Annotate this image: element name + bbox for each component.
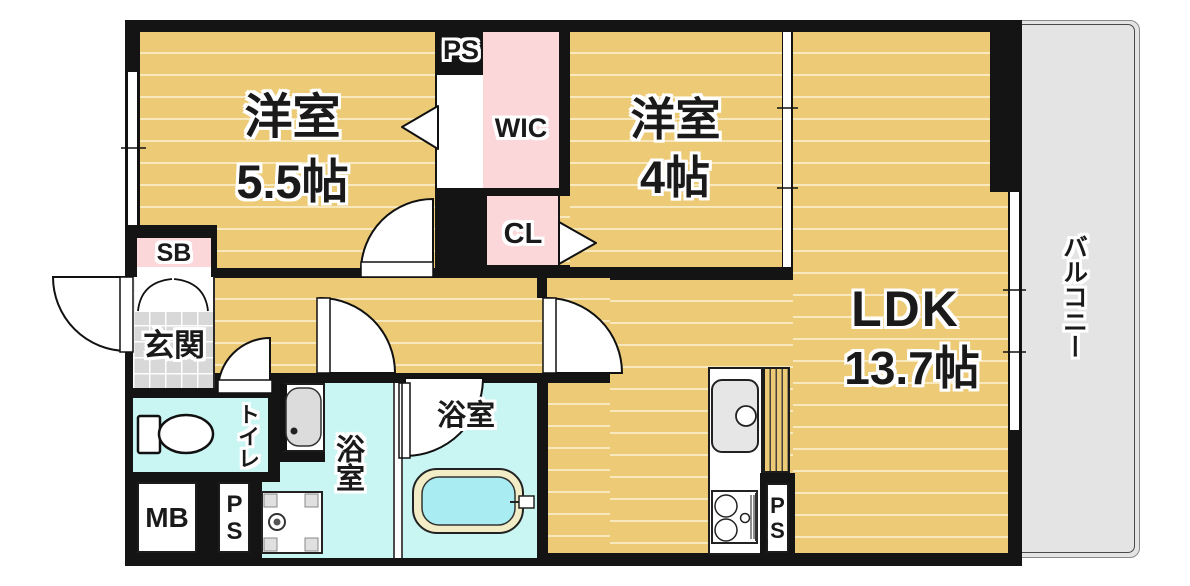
wic-label: WIC [485,110,557,146]
partition-wash-bath [393,383,403,558]
ps-kitchen-label: PS [765,485,789,551]
bedroom1-name-label: 洋室 [205,90,380,146]
ps-left-label: PS [219,486,249,550]
balcony-label: バルコニー [1056,222,1090,370]
sliding-partition [782,32,792,267]
sb-label: SB [139,239,209,267]
washroom-label: 浴室 [330,428,364,498]
toilet-label: トイレ [232,397,262,474]
entrance-label: 玄関 [135,326,213,364]
cl-label: CL [489,216,557,252]
kitchen-bar-counter [763,367,790,473]
wall-above-sb [127,225,217,238]
wall-hall-bottom [280,373,610,383]
ps-top-label: PS [437,27,485,73]
floor-plan: 洋室 5.5帖 洋室 4帖 LDK 13.7帖 WIC CL PS SB MB … [0,0,1190,586]
bathroom-label: 浴室 [426,398,506,434]
entrance-door-arc [53,277,127,351]
sb-front-opening [137,267,211,277]
bedroom2-name-label: 洋室 [598,92,753,147]
ldk-size-label: 13.7帖 [812,340,1012,396]
room-washroom-ext [262,482,280,558]
wall-right-of-sb [211,238,217,278]
sb-door-area [135,277,213,312]
washbasin-counter [280,383,325,452]
hallway [215,278,610,373]
bedroom1-size-label: 5.5帖 [205,152,380,210]
room-ldk-southwest [548,383,610,553]
window-west [126,72,139,225]
bedroom2-size-label: 4帖 [600,150,750,205]
mb-label: MB [137,500,197,536]
wall-patch-topright [990,32,1010,192]
wall-stub-hall [537,278,547,298]
ldk-name-label: LDK [818,283,993,335]
wic-door-opening [437,75,483,188]
kitchen-counter [708,367,763,555]
